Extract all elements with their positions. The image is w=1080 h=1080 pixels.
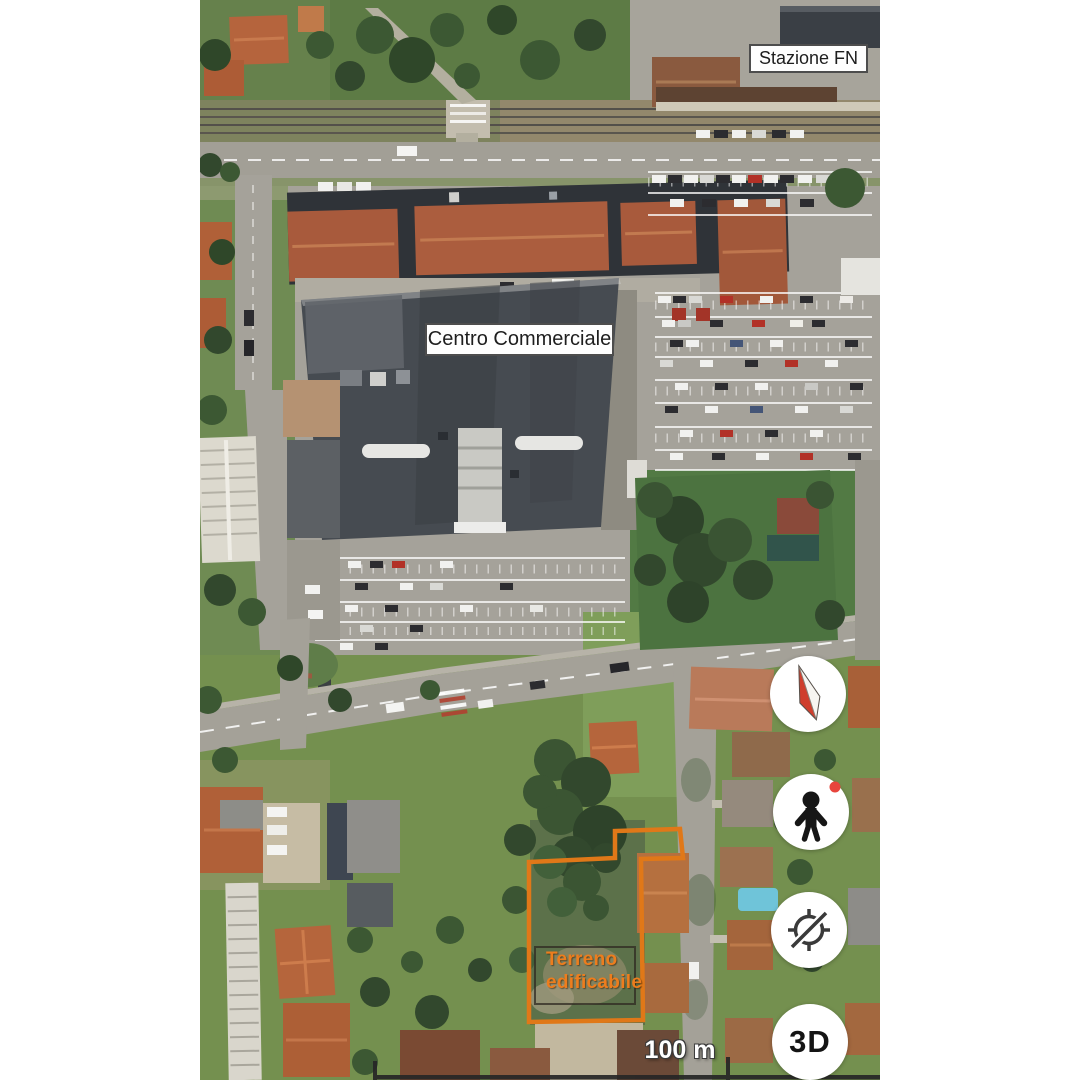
parcel-annotation-line2: edificabile [546, 971, 642, 994]
scale-bar-label: 100 m [630, 1036, 730, 1065]
parcel-annotation-label: Terreno edificabile [546, 948, 642, 994]
compass-icon [770, 656, 846, 732]
pegman-icon [773, 774, 849, 850]
3d-toggle-button[interactable]: 3D [772, 1004, 848, 1080]
shopping-center-building [301, 278, 647, 540]
station-map-label: Stazione FN [749, 44, 868, 73]
compass-button[interactable] [770, 656, 846, 732]
location-disabled-button[interactable] [771, 892, 847, 968]
pegman-button[interactable] [773, 774, 849, 850]
parcel-annotation-line1: Terreno [546, 948, 642, 971]
location-disabled-icon [771, 892, 847, 968]
pegman-notification-dot [830, 782, 841, 793]
shopping-center-map-label: Centro Commerciale [425, 323, 614, 356]
satellite-map[interactable]: Stazione FN Centro Commerciale Terreno e… [200, 0, 880, 1080]
3d-toggle-label: 3D [789, 1024, 831, 1060]
listing-image-canvas: Stazione FN Centro Commerciale Terreno e… [0, 0, 1080, 1080]
